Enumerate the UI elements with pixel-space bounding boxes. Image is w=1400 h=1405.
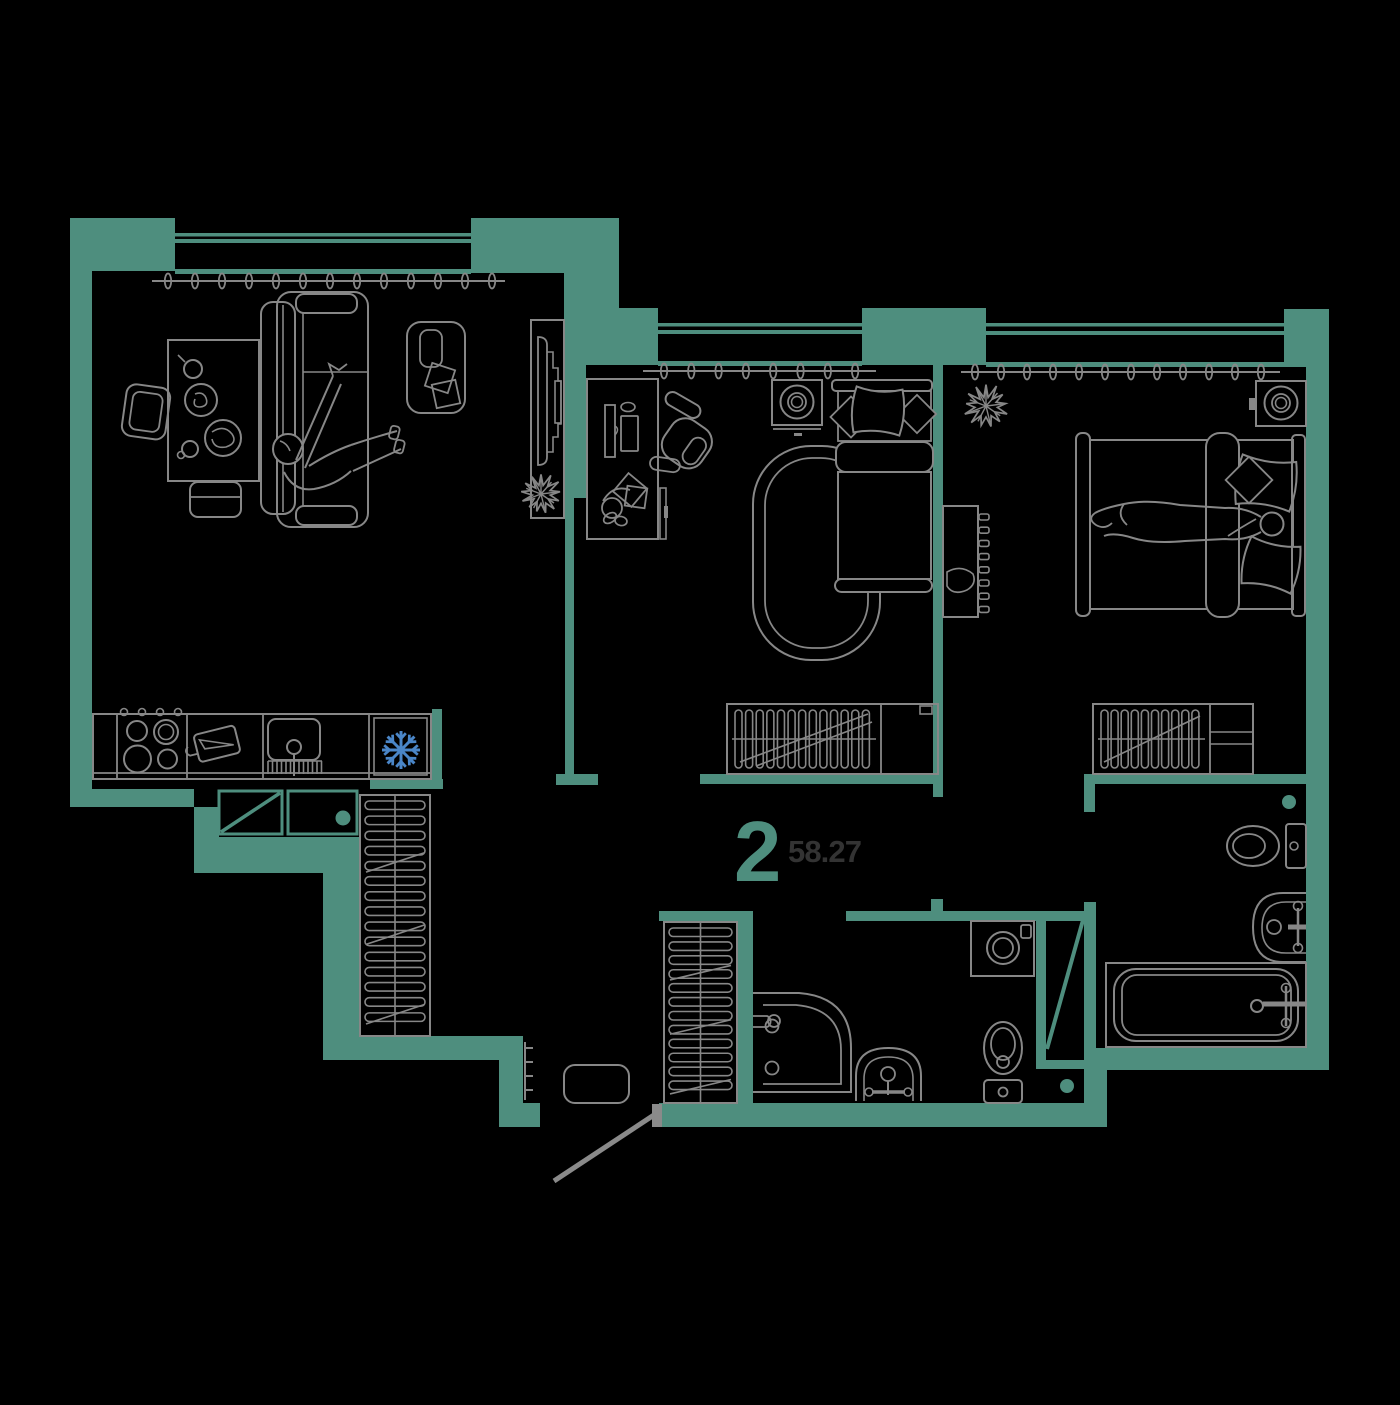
svg-text:2: 2 [734, 805, 781, 900]
svg-text:58.27: 58.27 [788, 834, 861, 869]
